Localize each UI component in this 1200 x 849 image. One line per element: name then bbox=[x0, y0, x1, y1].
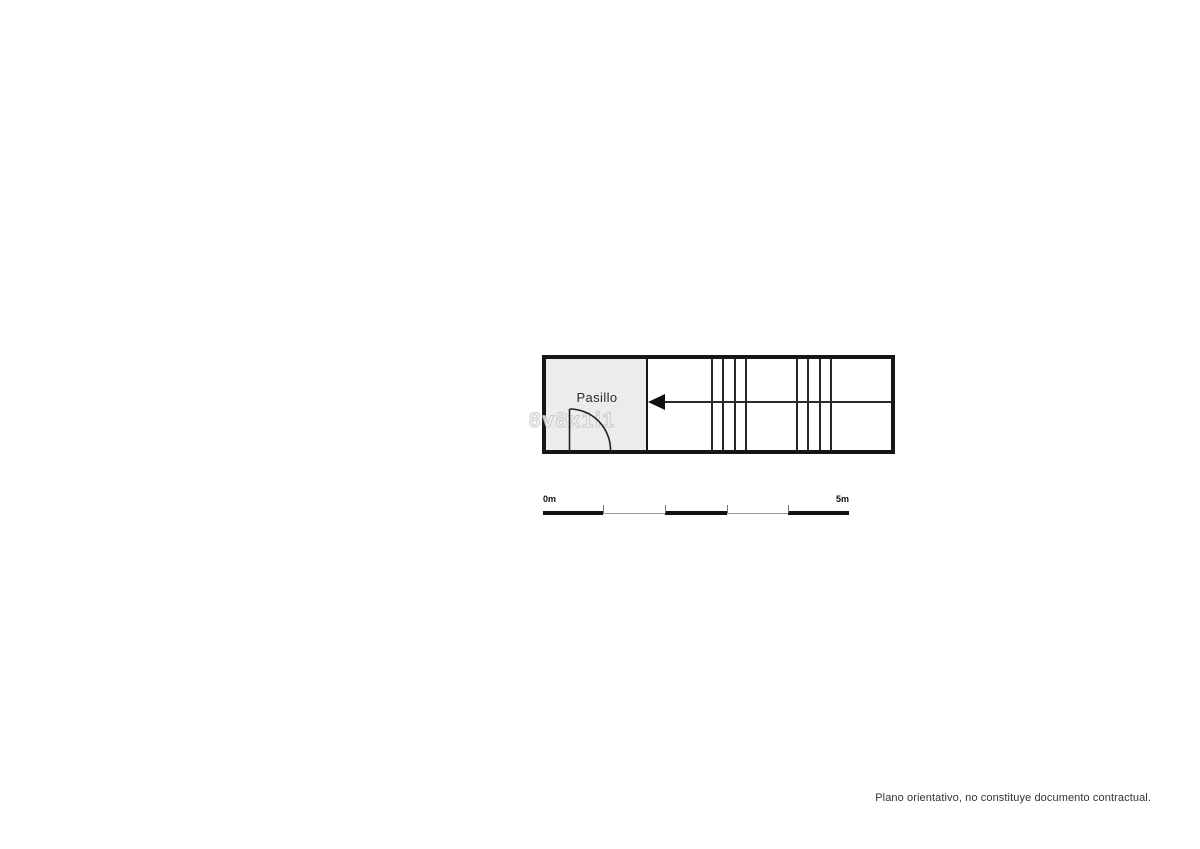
stair-line bbox=[796, 359, 798, 450]
stair-line bbox=[745, 359, 747, 450]
stair-line bbox=[722, 359, 724, 450]
scale-tick bbox=[788, 505, 789, 513]
scale-segment bbox=[665, 511, 727, 515]
scale-segment bbox=[543, 511, 603, 515]
scale-segment bbox=[788, 511, 849, 515]
stair-line bbox=[734, 359, 736, 450]
direction-arrow-left-icon bbox=[648, 394, 665, 410]
stair-line bbox=[807, 359, 809, 450]
floorplan-page: 8v8x1i1 Pasillo 0m 5m bbox=[0, 0, 1200, 849]
direction-line bbox=[650, 401, 891, 403]
stair-line bbox=[819, 359, 821, 450]
floorplan-outline: Pasillo bbox=[542, 355, 895, 454]
scale-tick bbox=[727, 505, 728, 513]
scale-tick bbox=[665, 505, 666, 513]
stair-line bbox=[711, 359, 713, 450]
disclaimer-text: Plano orientativo, no constituye documen… bbox=[875, 792, 1151, 804]
scale-bar: 0m 5m bbox=[543, 494, 849, 516]
scale-label-start: 0m bbox=[543, 494, 556, 504]
scale-label-end: 5m bbox=[836, 494, 849, 504]
stair-line bbox=[830, 359, 832, 450]
scale-tick bbox=[603, 505, 604, 513]
door-swing-icon bbox=[546, 359, 647, 450]
